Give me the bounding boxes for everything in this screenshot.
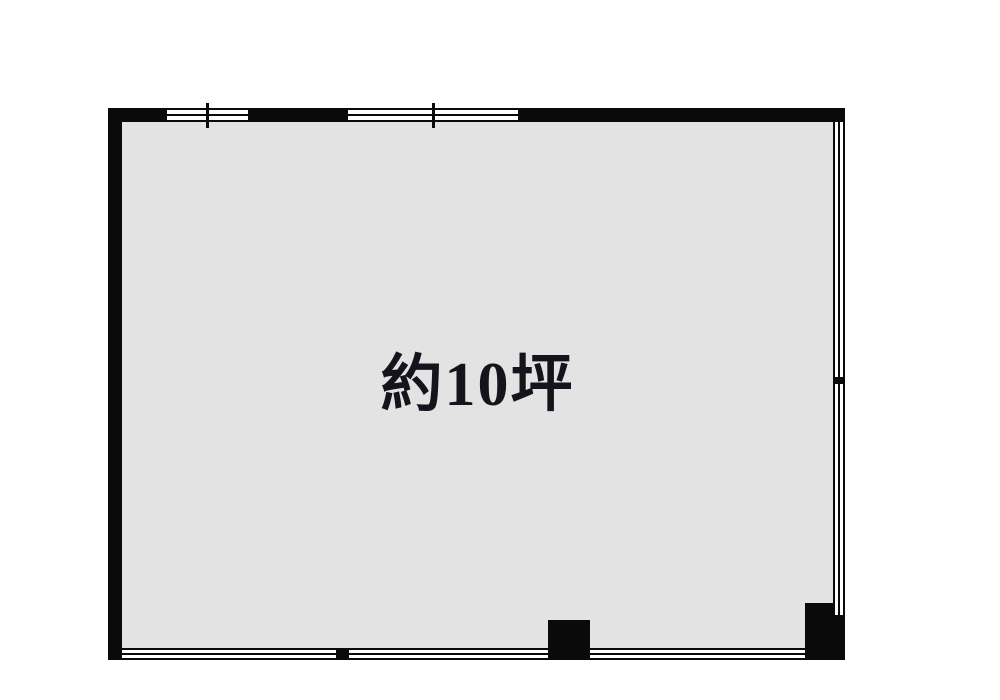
right-glass-wall bbox=[833, 122, 845, 615]
window-top-left bbox=[167, 108, 248, 122]
left-wall bbox=[108, 108, 122, 660]
floorplan-canvas: 約10坪 bbox=[0, 0, 1000, 700]
bottom-glass-divider bbox=[336, 648, 349, 660]
bottom-glass-wall bbox=[122, 648, 805, 660]
window-top-center bbox=[348, 108, 518, 122]
window-mullion bbox=[432, 103, 435, 128]
pillar-bottom-center bbox=[548, 620, 590, 660]
room-area-label: 約10坪 bbox=[380, 354, 574, 416]
room-floor: 約10坪 bbox=[122, 122, 833, 648]
right-glass-divider bbox=[833, 377, 845, 384]
window-mullion bbox=[206, 103, 209, 128]
